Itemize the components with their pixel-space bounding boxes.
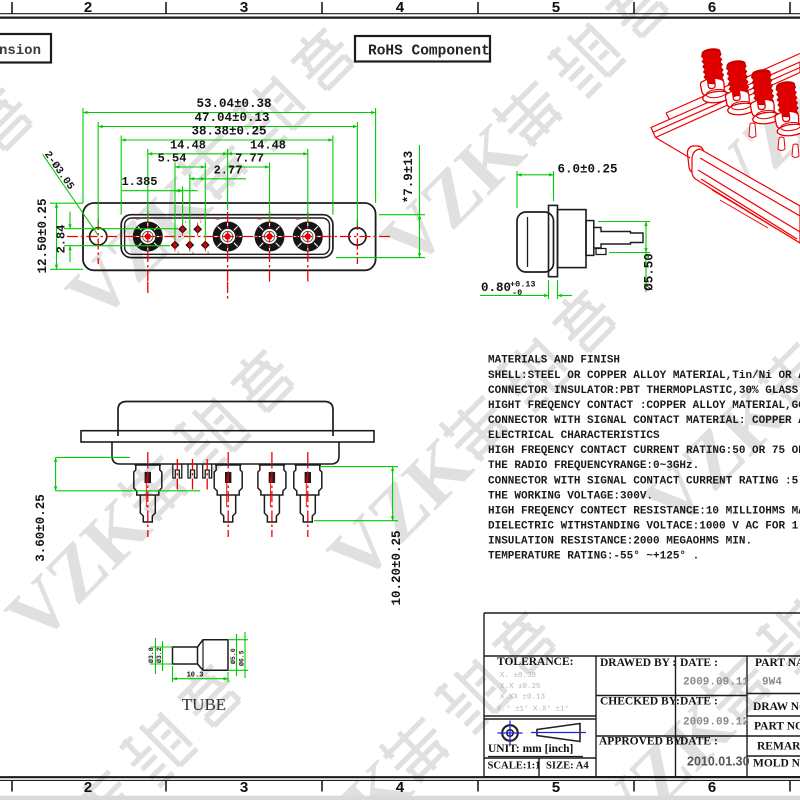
svg-text:2.84: 2.84 [55,225,69,254]
svg-text:CONNECTOR INSULATOR:PBT THERMO: CONNECTOR INSULATOR:PBT THERMOPLASTIC,30… [488,385,800,397]
svg-text:14.48: 14.48 [170,139,206,153]
svg-text:4: 4 [192,251,194,255]
svg-text:5: 5 [207,251,209,255]
svg-text:14.48: 14.48 [250,139,286,153]
svg-text:DRAW NO: DRAW NO [753,701,800,713]
svg-text:DATE :: DATE : [680,736,718,748]
svg-text:-0: -0 [512,288,522,298]
svg-text:5: 5 [551,780,560,797]
svg-text:UNIT: mm [inch]: UNIT: mm [inch] [488,743,573,755]
svg-text:4: 4 [395,780,404,797]
svg-text:6.0±0.25: 6.0±0.25 [558,163,618,177]
svg-text:PART NAME: PART NAME [755,657,800,669]
svg-text:3.60±0.25: 3.60±0.25 [34,494,48,562]
svg-text:2009.09.11: 2009.09.11 [683,677,749,689]
svg-text:2010.01.30: 2010.01.30 [687,755,750,769]
svg-text:HIGHT FREQENCY CONTACT :COPPER: HIGHT FREQENCY CONTACT :COPPER ALLOY MAT… [488,400,800,412]
svg-text:ELECTRICAL CHARACTERISTICS: ELECTRICAL CHARACTERISTICS [488,430,660,442]
svg-text:A2: A2 [216,217,220,221]
svg-text:2: 2 [200,220,202,224]
svg-text:0.80: 0.80 [481,281,511,295]
svg-text:Ø5.0: Ø5.0 [229,648,237,664]
svg-text:2: 2 [83,780,92,797]
svg-text:REMARK: REMARK [757,741,800,753]
svg-text:CHECKED BY:: CHECKED BY: [600,696,680,708]
svg-text:5.54: 5.54 [158,152,187,166]
svg-text:47.04±0.13: 47.04±0.13 [194,111,269,125]
svg-text:SIZE: A4: SIZE: A4 [546,761,589,772]
svg-text:A4: A4 [296,217,300,221]
svg-text:THE WORKING VOLTAGE:300V.: THE WORKING VOLTAGE:300V. [488,490,653,502]
svg-text:X. ±0.38: X. ±0.38 [500,672,536,680]
svg-text:PART NO.: PART NO. [754,721,800,733]
svg-text:38.38±0.25: 38.38±0.25 [191,125,266,139]
svg-text:SHELL:STEEL OR COPPER ALLOY MA: SHELL:STEEL OR COPPER ALLOY MATERIAL,Tin… [488,370,800,382]
svg-text:X.X ±0.25: X.X ±0.25 [500,683,541,691]
svg-text:*7.9±13: *7.9±13 [402,151,416,204]
svg-text:2009.09.12: 2009.09.12 [683,717,749,729]
svg-text:RoHS Component: RoHS Component [368,44,490,60]
svg-text:INSULATION RESISTANCE:2000 MEG: INSULATION RESISTANCE:2000 MEGAOHMS MIN. [488,536,752,548]
svg-text:Ø5.50: Ø5.50 [643,253,657,291]
svg-text:X.° ±1° X.X° ±1°: X.° ±1° X.X° ±1° [497,705,569,714]
svg-text:3: 3 [177,251,179,255]
svg-text:MOLD NO: MOLD NO [753,758,800,770]
svg-text:6: 6 [707,780,716,797]
svg-text:DATE :: DATE : [680,696,718,708]
svg-text:1: 1 [185,220,187,224]
svg-text:4: 4 [395,0,404,17]
svg-text:2-Ø3.05: 2-Ø3.05 [41,149,76,192]
svg-text:TUBE: TUBE [182,695,226,714]
svg-text:TEMPERATURE RATING:-55° ~+125°: TEMPERATURE RATING:-55° ~+125° . [488,551,699,563]
svg-text:THE RADIO FREQUENCYRANGE:0~3GH: THE RADIO FREQUENCYRANGE:0~3GHz. [488,460,699,472]
svg-text:CONNECTOR WITH SIGNAL CONTACT: CONNECTOR WITH SIGNAL CONTACT CURRENT RA… [488,475,800,487]
svg-text:DIELECTRIC WITHSTANDING VOLTAC: DIELECTRIC WITHSTANDING VOLTACE:1000 V A… [488,521,800,533]
svg-text:Ø3.8: Ø3.8 [147,647,155,663]
svg-text:3: 3 [239,0,248,17]
svg-text:A1: A1 [136,217,140,221]
svg-text:10.3: 10.3 [187,672,204,680]
svg-text:SCALE:1:1: SCALE:1:1 [488,761,541,772]
svg-text:MATERIALS AND FINISH: MATERIALS AND FINISH [488,355,620,367]
svg-text:TOLERANCE:: TOLERANCE: [497,656,573,668]
svg-text:DRAWED BY :: DRAWED BY : [600,657,676,669]
svg-text:DATE :: DATE : [680,657,718,669]
svg-text:X.XX ±0.13: X.XX ±0.13 [500,694,546,702]
svg-text:12.50±0.25: 12.50±0.25 [36,198,50,273]
svg-text:ension: ension [0,43,41,59]
svg-text:9W4: 9W4 [762,677,782,689]
svg-text:CONNECTOR WITH SIGNAL CONTACT: CONNECTOR WITH SIGNAL CONTACT MATERIAL: … [488,415,800,427]
svg-text:2.77: 2.77 [214,164,243,178]
svg-text:10.20±0.25: 10.20±0.25 [390,530,404,605]
svg-text:2: 2 [83,0,92,17]
svg-text:APPROVED BY:: APPROVED BY: [599,736,685,748]
svg-text:Ø6.5: Ø6.5 [238,650,246,666]
svg-text:1.385: 1.385 [121,175,157,189]
svg-text:3: 3 [239,780,248,797]
svg-text:6: 6 [707,0,716,17]
svg-text:5: 5 [551,0,560,17]
svg-text:HIGH FREQENCY CONTACT CURRENT: HIGH FREQENCY CONTACT CURRENT RATING:50 … [488,445,800,457]
svg-text:A3: A3 [258,217,262,221]
svg-text:HIGH FREQENCY CONTECT RESISTAN: HIGH FREQENCY CONTECT RESISTANCE:10 MILL… [488,505,800,517]
svg-text:53.04±0.38: 53.04±0.38 [196,97,271,111]
svg-text:Ø3.2: Ø3.2 [155,647,163,663]
